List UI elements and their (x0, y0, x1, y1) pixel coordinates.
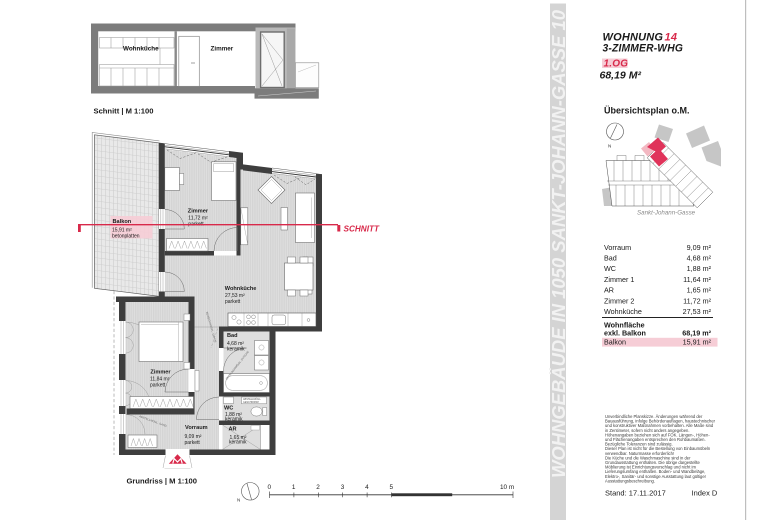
svg-text:0: 0 (268, 484, 272, 491)
svg-text:3-ZIMMER-WHG: 3-ZIMMER-WHG (603, 42, 684, 54)
svg-text:5: 5 (390, 484, 394, 491)
svg-text:parkett: parkett (225, 299, 241, 305)
svg-text:Zimmer 1: Zimmer 1 (604, 275, 634, 284)
svg-text:keramik: keramik (225, 417, 243, 423)
svg-text:N: N (237, 498, 240, 503)
svg-text:AR: AR (229, 427, 237, 433)
svg-text:parkett: parkett (150, 383, 166, 389)
svg-text:N: N (608, 144, 611, 149)
svg-text:Wohnküche: Wohnküche (225, 286, 257, 292)
svg-text:SCHNITT: SCHNITT (344, 225, 380, 234)
svg-text:exkl. Balkon: exkl. Balkon (604, 328, 646, 337)
svg-text:Ausstattungsbeschreibung.: Ausstattungsbeschreibung. (605, 478, 655, 483)
svg-text:Wohnküche: Wohnküche (123, 46, 159, 53)
svg-text:27,53 m²: 27,53 m² (683, 307, 712, 316)
svg-text:Bad: Bad (227, 333, 238, 339)
svg-text:Zimmer: Zimmer (188, 209, 209, 215)
svg-text:Zimmer 2: Zimmer 2 (604, 296, 634, 305)
svg-text:WOHNGEBÄUDE IN 1050 SANKT-JOHA: WOHNGEBÄUDE IN 1050 SANKT-JOHANN-GASSE 1… (548, 9, 569, 478)
svg-text:keramik: keramik (229, 440, 247, 446)
svg-text:Bad: Bad (604, 254, 617, 263)
svg-text:3: 3 (341, 484, 345, 491)
svg-text:11,72 m²: 11,72 m² (683, 296, 711, 305)
svg-text:4,68 m²: 4,68 m² (687, 254, 712, 263)
svg-text:15,91 m²: 15,91 m² (683, 338, 712, 347)
svg-text:1,65 m²: 1,65 m² (687, 286, 712, 295)
svg-text:keramik: keramik (227, 347, 245, 353)
svg-text:Schnitt | M 1:100: Schnitt | M 1:100 (94, 107, 154, 116)
svg-text:10 m: 10 m (500, 484, 514, 491)
svg-text:Balkon: Balkon (604, 338, 626, 347)
svg-text:Vorraum: Vorraum (185, 425, 208, 431)
svg-text:68,19 m²: 68,19 m² (682, 328, 711, 337)
svg-text:Übersichtsplan o.M.: Übersichtsplan o.M. (604, 106, 690, 116)
svg-text:Vorraum: Vorraum (604, 243, 631, 252)
svg-text:11,64 m²: 11,64 m² (683, 275, 711, 284)
svg-text:parkett: parkett (185, 440, 201, 446)
svg-text:Zimmer: Zimmer (150, 370, 171, 376)
svg-text:betonplatten: betonplatten (112, 234, 140, 240)
svg-text:1: 1 (292, 484, 296, 491)
svg-text:WC: WC (224, 406, 233, 412)
svg-text:Zimmer: Zimmer (211, 46, 234, 53)
svg-text:9,09 m²: 9,09 m² (687, 243, 712, 252)
svg-text:Sankt-Johann-Gasse: Sankt-Johann-Gasse (637, 210, 696, 217)
svg-text:GESCHIRRSP.: GESCHIRRSP. (243, 401, 259, 404)
svg-text:1,88 m²: 1,88 m² (687, 264, 712, 273)
svg-text:Grundriss | M 1:100: Grundriss | M 1:100 (127, 477, 198, 486)
svg-text:Stand: 17.11.2017: Stand: 17.11.2017 (605, 489, 666, 498)
svg-text:4: 4 (365, 484, 369, 491)
svg-text:Index D: Index D (692, 489, 718, 498)
svg-text:Wohnküche: Wohnküche (604, 307, 642, 316)
svg-text:2: 2 (316, 484, 320, 491)
svg-text:AR: AR (604, 286, 614, 295)
svg-text:WC: WC (604, 264, 616, 273)
svg-text:68,19 M²: 68,19 M² (600, 70, 642, 82)
svg-text:1.OG: 1.OG (604, 59, 629, 70)
